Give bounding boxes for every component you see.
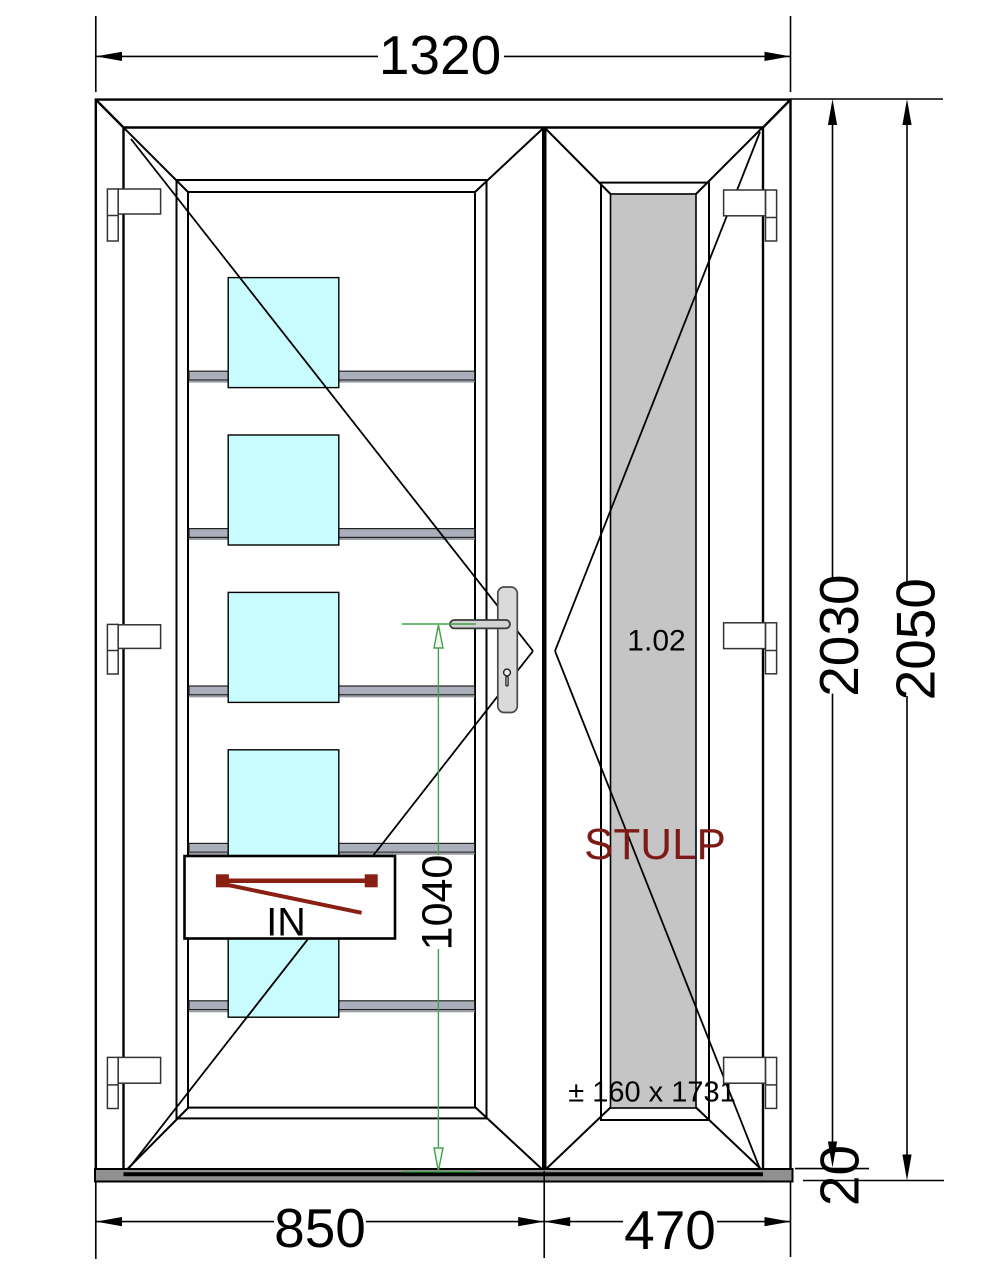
svg-text:1.02: 1.02 xyxy=(627,625,685,658)
svg-text:470: 470 xyxy=(624,1199,716,1261)
svg-text:2050: 2050 xyxy=(885,578,947,700)
svg-text:IN: IN xyxy=(266,901,306,945)
svg-text:STULP: STULP xyxy=(584,820,726,869)
svg-text:850: 850 xyxy=(274,1197,366,1259)
svg-text:1040: 1040 xyxy=(414,855,462,951)
svg-text:2030: 2030 xyxy=(808,574,870,696)
svg-text:1320: 1320 xyxy=(379,24,501,86)
svg-text:± 160 x 1731: ± 160 x 1731 xyxy=(568,1077,736,1109)
svg-text:20: 20 xyxy=(809,1145,871,1206)
